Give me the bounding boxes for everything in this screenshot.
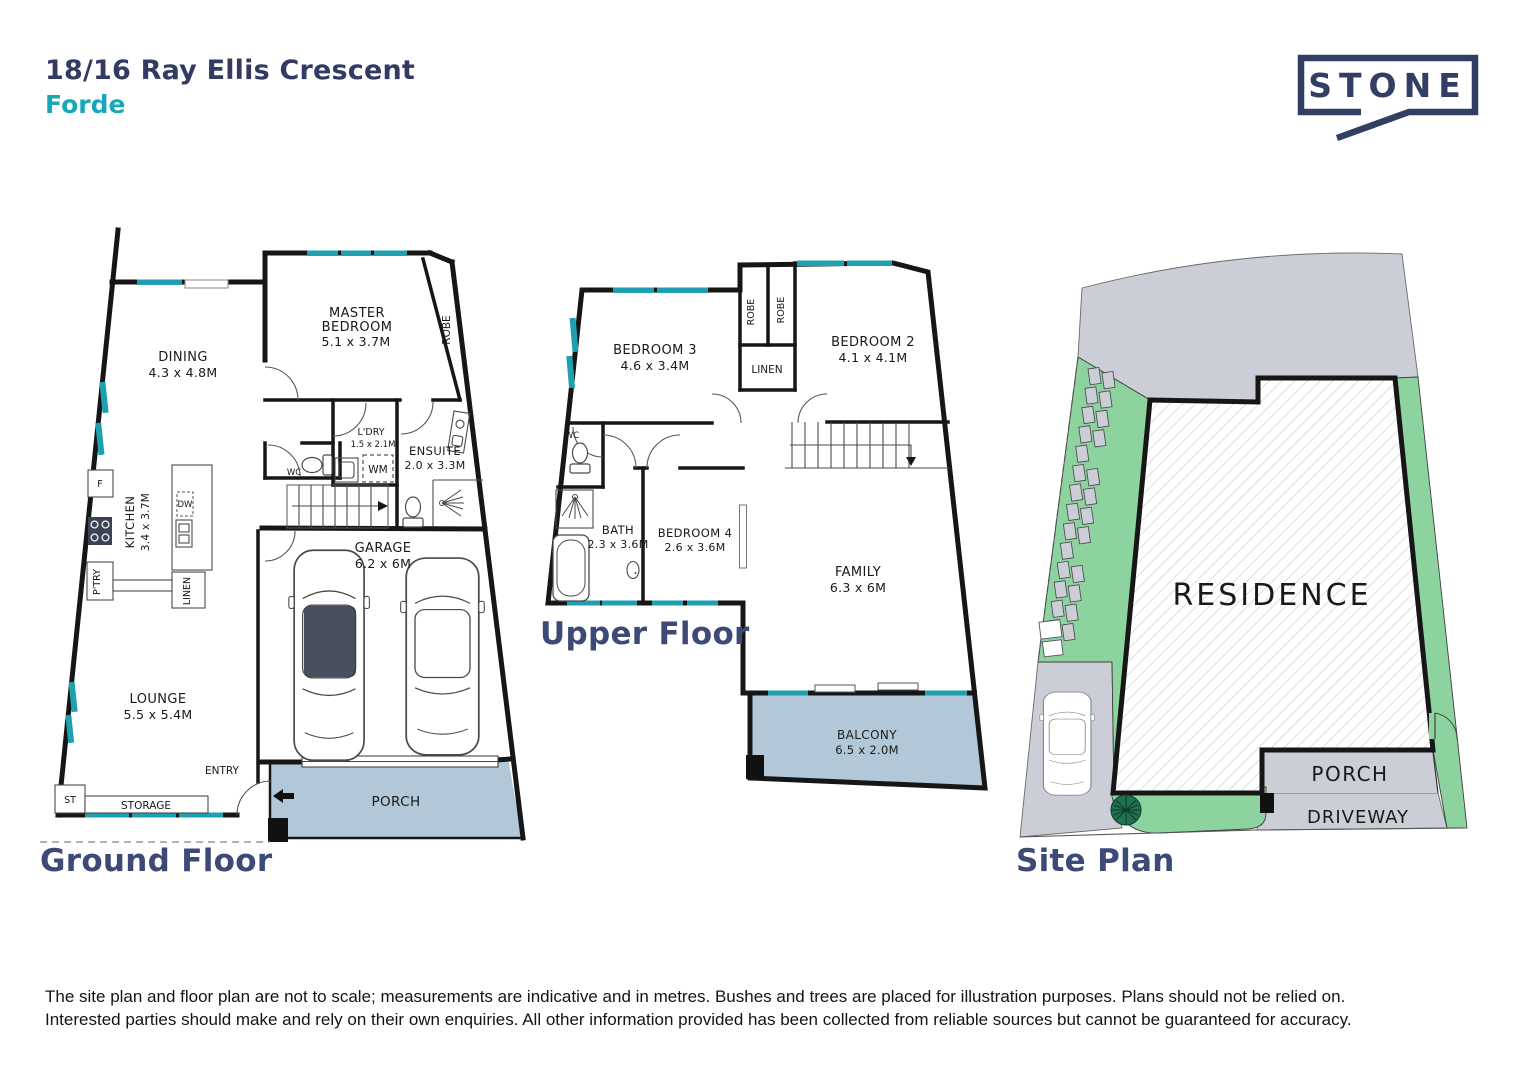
upper-stairs bbox=[785, 422, 949, 468]
upper-floor-plan: BEDROOM 3 4.6 x 3.4M ROBE ROBE LINEN BED… bbox=[540, 250, 1000, 810]
room-label-bedroom2: BEDROOM 2 bbox=[831, 335, 915, 350]
label-robe: ROBE bbox=[441, 315, 453, 344]
toilet-icon bbox=[302, 455, 332, 475]
room-label-lounge: LOUNGE bbox=[130, 692, 187, 707]
floorplan-page: 18/16 Ray Ellis Crescent Forde STONE bbox=[0, 0, 1529, 1080]
room-dims-bedroom4: 2.6 x 3.6M bbox=[665, 541, 726, 554]
room-dims-lounge: 5.5 x 5.4M bbox=[124, 707, 193, 722]
stairs-up-arrow-icon bbox=[378, 501, 388, 511]
car-icon bbox=[401, 558, 485, 755]
toilet-icon bbox=[570, 443, 590, 473]
label-entry: ENTRY bbox=[205, 765, 240, 777]
shower-icon bbox=[562, 495, 588, 520]
label-wm: WM bbox=[368, 464, 387, 476]
label-robe-2: ROBE bbox=[776, 297, 787, 324]
porch-pillar bbox=[268, 818, 288, 842]
label-driveway: DRIVEWAY bbox=[1307, 807, 1409, 828]
ground-floor-title: Ground Floor bbox=[40, 843, 272, 879]
shower-icon bbox=[440, 490, 465, 516]
stairs-down-arrow-icon bbox=[906, 457, 916, 466]
disclaimer: The site plan and floor plan are not to … bbox=[45, 986, 1500, 1032]
room-label-master-2: BEDROOM bbox=[322, 320, 393, 335]
label-site-porch: PORCH bbox=[1311, 762, 1388, 786]
room-dims-ldry: 1.5 x 2.1M bbox=[351, 440, 396, 450]
room-dims-bath: 2.3 x 3.6M bbox=[588, 538, 649, 551]
car-sunroof bbox=[304, 606, 356, 677]
room-label-family: FAMILY bbox=[835, 565, 881, 580]
label-storage: STORAGE bbox=[121, 800, 171, 812]
header: 18/16 Ray Ellis Crescent Forde bbox=[45, 55, 415, 119]
room-label-bedroom4: BEDROOM 4 bbox=[658, 526, 733, 540]
room-label-ensuite: ENSUITE bbox=[409, 444, 461, 458]
label-pantry: P'TRY bbox=[92, 569, 103, 595]
room-dims-family: 6.3 x 6M bbox=[830, 580, 886, 595]
tree-icon bbox=[1111, 795, 1141, 825]
disclaimer-line-1: The site plan and floor plan are not to … bbox=[45, 986, 1500, 1009]
site-plan: RESIDENCE PORCH DRIVEWAY bbox=[1010, 245, 1490, 845]
disclaimer-line-2: Interested parties should make and rely … bbox=[45, 1009, 1500, 1032]
cooktop-icon bbox=[88, 517, 112, 545]
label-st: ST bbox=[64, 795, 76, 806]
upper-doors bbox=[573, 394, 827, 468]
room-label-ldry: L'DRY bbox=[357, 427, 384, 438]
room-dims-kitchen: 3.4 x 3.7M bbox=[140, 493, 152, 551]
room-dims-bedroom2: 4.1 x 4.1M bbox=[839, 350, 908, 365]
label-residence: RESIDENCE bbox=[1172, 578, 1371, 613]
label-linen: LINEN bbox=[182, 577, 193, 605]
room-dims-bedroom3: 4.6 x 3.4M bbox=[621, 358, 690, 373]
stone-logo-text: STONE bbox=[1308, 66, 1468, 105]
room-dims-balcony: 6.5 x 2.0M bbox=[835, 743, 899, 757]
toilet-icon bbox=[403, 497, 423, 527]
stone-logo: STONE bbox=[1293, 50, 1483, 145]
property-address: 18/16 Ray Ellis Crescent bbox=[45, 55, 415, 86]
label-wc: WC bbox=[287, 468, 301, 478]
label-dw: DW bbox=[178, 500, 194, 510]
label-upper-wc: WC bbox=[565, 431, 579, 441]
upper-floor-title: Upper Floor bbox=[540, 616, 750, 652]
balcony-pillar bbox=[746, 755, 764, 779]
room-label-bedroom3: BEDROOM 3 bbox=[613, 343, 697, 358]
stairs bbox=[287, 485, 388, 528]
room-dims-dining: 4.3 x 4.8M bbox=[149, 365, 218, 380]
room-label-balcony: BALCONY bbox=[837, 728, 897, 742]
room-label-garage: GARAGE bbox=[355, 541, 412, 556]
upper-fixtures bbox=[553, 443, 639, 601]
room-dims-ensuite: 2.0 x 3.3M bbox=[405, 459, 466, 472]
property-suburb: Forde bbox=[45, 90, 415, 119]
label-fridge: F bbox=[97, 479, 102, 490]
garage-cars bbox=[289, 550, 484, 760]
room-label-dining: DINING bbox=[158, 350, 208, 365]
label-upper-linen: LINEN bbox=[751, 364, 782, 376]
room-dims-master: 5.1 x 3.7M bbox=[322, 334, 391, 349]
bathtub-icon bbox=[553, 535, 589, 601]
room-label-bath: BATH bbox=[602, 523, 634, 537]
site-porch-pillar bbox=[1260, 793, 1274, 813]
parked-car-icon bbox=[1040, 692, 1095, 795]
site-plan-title: Site Plan bbox=[1016, 843, 1175, 879]
label-robe-1: ROBE bbox=[746, 299, 757, 326]
ground-floor-plan: DINING 4.3 x 4.8M MASTER BEDROOM 5.1 x 3… bbox=[30, 220, 540, 865]
room-label-master-1: MASTER bbox=[329, 306, 385, 321]
room-dims-garage: 6.2 x 6M bbox=[355, 556, 411, 571]
label-porch: PORCH bbox=[371, 794, 420, 810]
room-label-kitchen: KITCHEN bbox=[123, 496, 137, 549]
